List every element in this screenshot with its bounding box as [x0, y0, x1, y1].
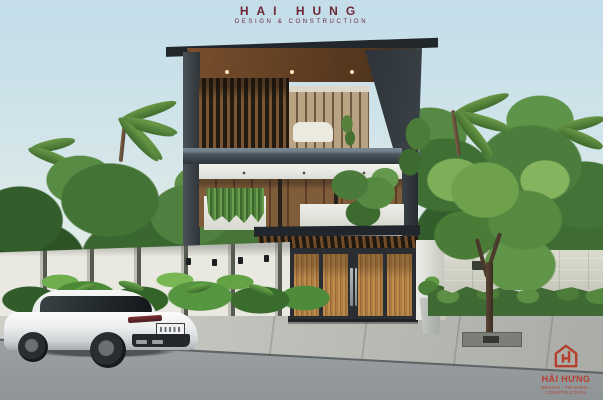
hai-hung-house-icon: [553, 355, 579, 372]
tree-grate: [462, 332, 522, 347]
wall-mullion: [278, 179, 282, 227]
brand-header: HAI HUNG DESIGN & CONSTRUCTION: [0, 4, 603, 25]
watermark-logo: HẢI HƯNG DESIGN - TRADING - CONSTRUCTION: [530, 344, 602, 398]
gate-handle: [350, 268, 353, 306]
wall-lamp: [264, 255, 269, 262]
street-tree-trunk: [486, 262, 493, 336]
brand-subtitle: DESIGN & CONSTRUCTION: [0, 19, 603, 25]
front-wheel: [18, 332, 48, 362]
floor-slab: [183, 148, 420, 164]
exhaust-tip: [136, 340, 147, 344]
interior-plant: [338, 112, 356, 146]
wall-lamp: [212, 259, 217, 266]
wall-lamp: [238, 257, 243, 264]
watermark-tagline: DESIGN - TRADING - CONSTRUCTION: [530, 385, 602, 395]
interior-sofa: [293, 122, 333, 142]
grate-hole: [483, 336, 499, 343]
timber-louver-screen: [199, 78, 289, 150]
architectural-render: HAI HUNG DESIGN & CONSTRUCTION HẢI HƯNG …: [0, 0, 603, 400]
plate-characters: [160, 327, 180, 332]
gate-handle: [355, 268, 358, 306]
rear-wheel: [90, 332, 126, 368]
watermark-title: HẢI HƯNG: [530, 374, 602, 384]
wall-lamp: [186, 258, 191, 265]
gate-panel: [387, 254, 412, 316]
brand-title: HAI HUNG: [0, 4, 603, 18]
gate-panel: [358, 254, 383, 316]
street-tree-canopy: [425, 140, 575, 290]
white-car: [4, 288, 204, 368]
exhaust-tip: [152, 340, 163, 344]
car-windows: [40, 296, 152, 313]
